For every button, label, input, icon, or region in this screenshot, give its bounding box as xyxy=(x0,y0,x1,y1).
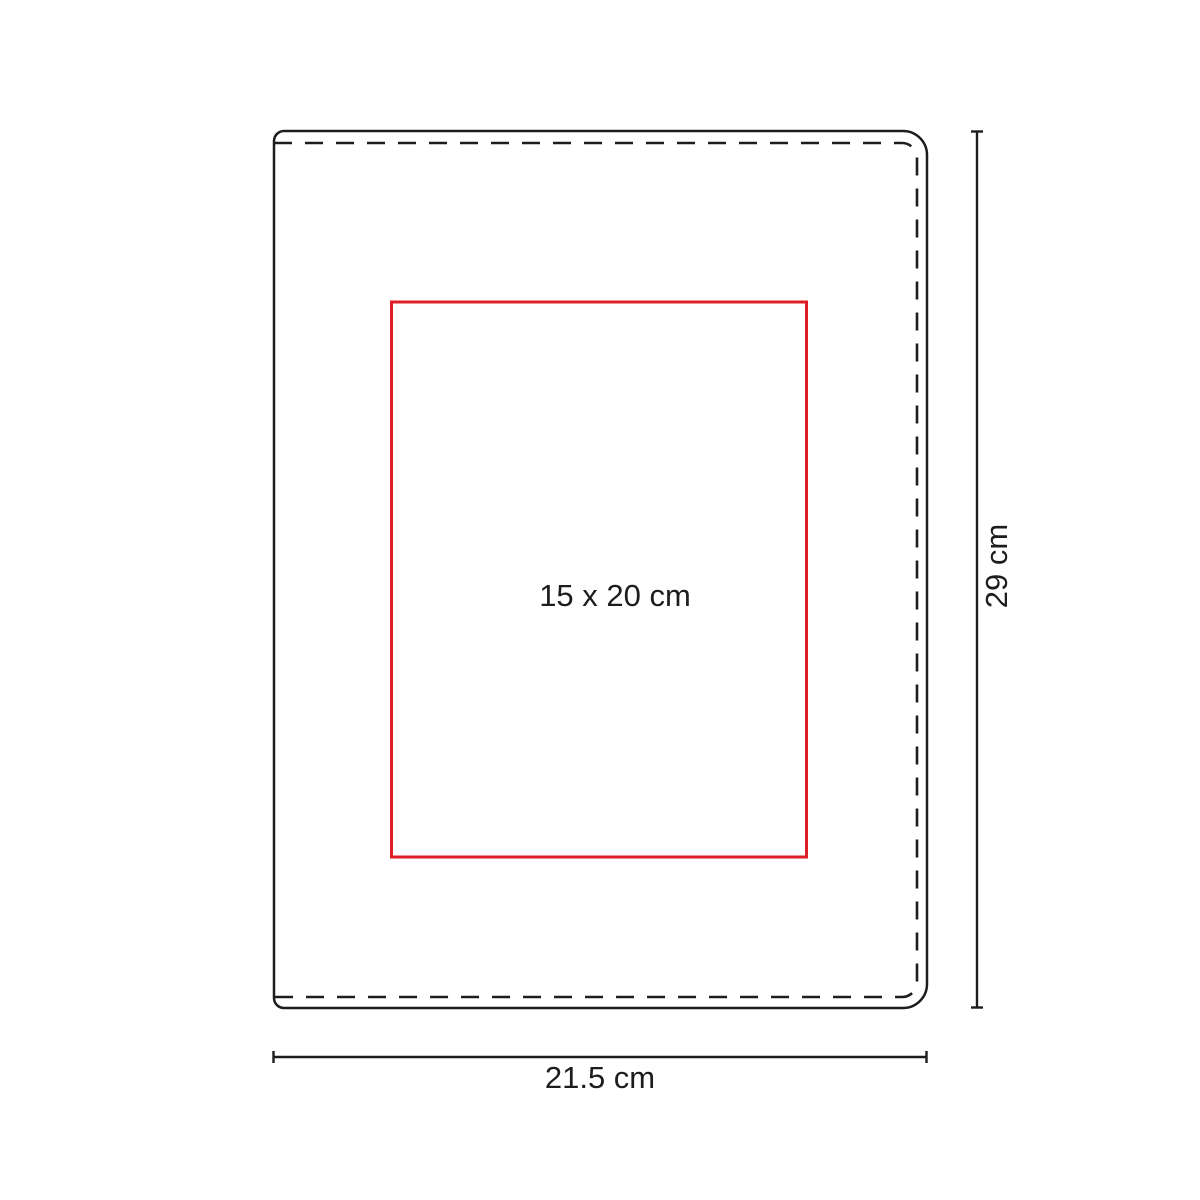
width-dimension-label: 21.5 cm xyxy=(545,1060,655,1095)
dimension-diagram-svg: 15 x 20 cm 29 cm 21.5 cm xyxy=(0,0,1200,1200)
height-dimension-line: 29 cm xyxy=(971,132,1014,1008)
height-dimension-label: 29 cm xyxy=(979,524,1014,608)
product-outline xyxy=(274,131,927,1008)
print-area-label: 15 x 20 cm xyxy=(539,578,691,613)
dimension-diagram-canvas: 15 x 20 cm 29 cm 21.5 cm xyxy=(0,0,1200,1200)
width-dimension-line: 21.5 cm xyxy=(274,1051,927,1095)
stitching-dashed-line xyxy=(274,143,917,997)
